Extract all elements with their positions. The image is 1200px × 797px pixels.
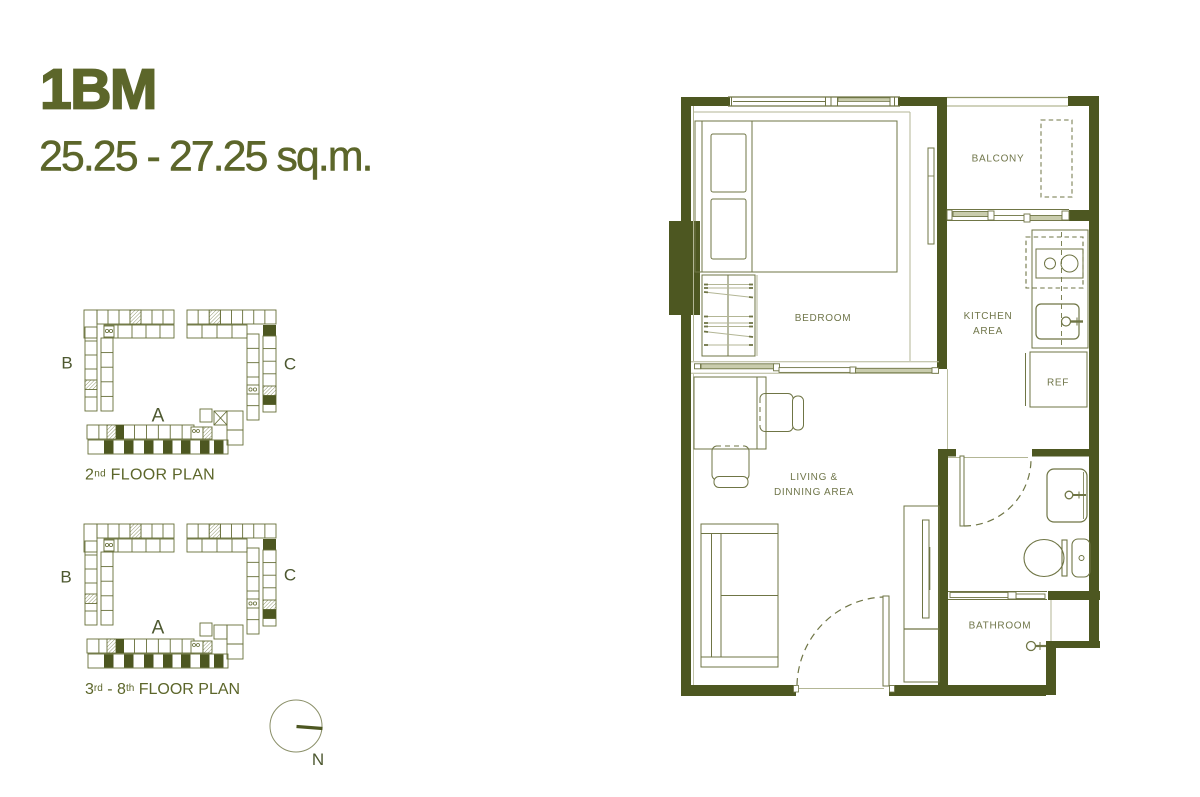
svg-text:BATHROOM: BATHROOM	[969, 621, 1032, 632]
svg-text:A: A	[152, 618, 165, 639]
svg-text:REF: REF	[1047, 378, 1069, 389]
svg-text:1BM: 1BM	[40, 58, 156, 122]
svg-text:AREA: AREA	[973, 326, 1003, 337]
svg-text:BALCONY: BALCONY	[972, 154, 1025, 165]
svg-text:25.25 - 27.25 sq.m.: 25.25 - 27.25 sq.m.	[39, 133, 372, 181]
svg-text:3rd - 8th FLOOR PLAN: 3rd - 8th FLOOR PLAN	[85, 681, 240, 698]
svg-text:KITCHEN: KITCHEN	[964, 311, 1013, 322]
svg-text:C: C	[284, 566, 296, 585]
svg-text:A: A	[152, 406, 165, 427]
svg-text:B: B	[60, 568, 71, 587]
svg-text:LIVING &: LIVING &	[790, 472, 838, 483]
svg-text:BEDROOM: BEDROOM	[795, 313, 852, 324]
svg-text:DINNING AREA: DINNING AREA	[774, 487, 854, 498]
svg-text:C: C	[284, 355, 296, 374]
svg-text:N: N	[312, 750, 324, 769]
svg-text:B: B	[61, 354, 72, 373]
svg-text:2nd FLOOR PLAN: 2nd FLOOR PLAN	[85, 467, 215, 484]
